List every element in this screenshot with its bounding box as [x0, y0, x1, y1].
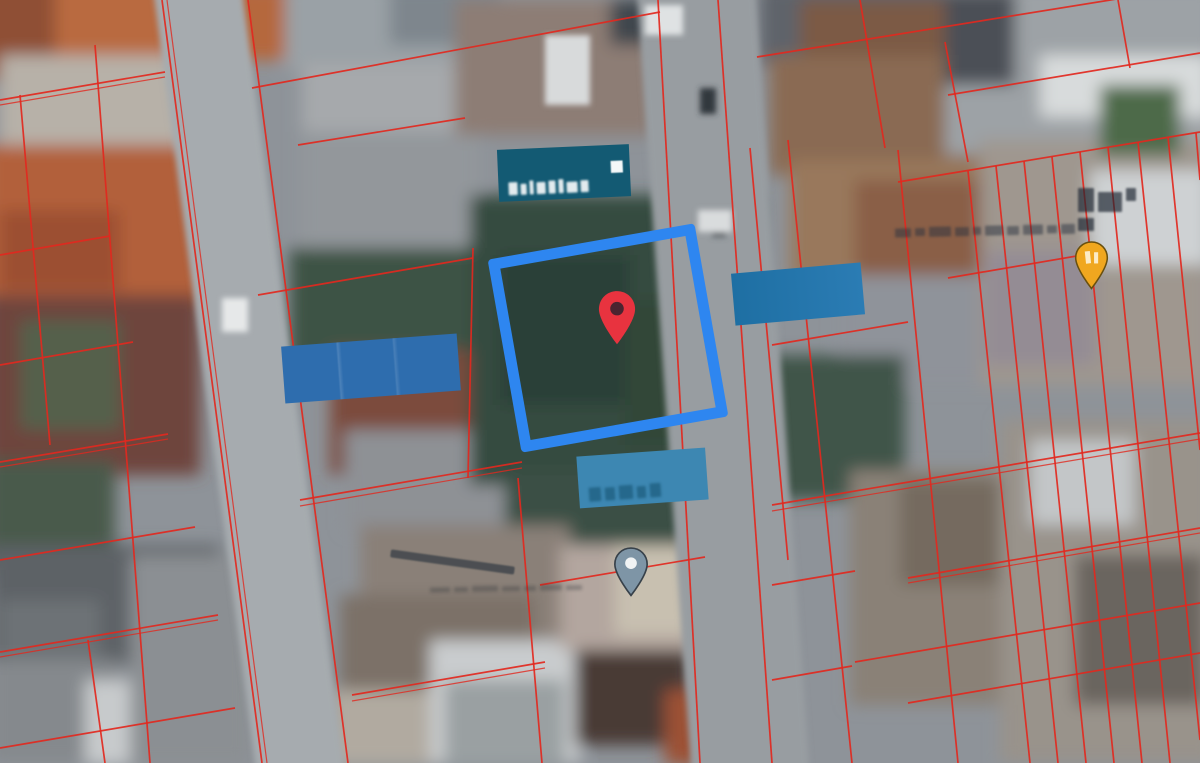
blurred-glyph: [536, 182, 546, 194]
motorbike: [700, 88, 716, 114]
blurred-bold-text: [1076, 188, 1146, 236]
blurred-glyph: [508, 182, 518, 195]
red-location-pin[interactable]: [597, 290, 637, 346]
blurred-glyph: [637, 486, 647, 499]
gray-location-pin[interactable]: [613, 547, 649, 597]
blurred-glyph: [558, 179, 564, 193]
white-car: [222, 298, 248, 332]
pin-icon: [613, 547, 649, 597]
redacted-label-top: [497, 144, 631, 202]
redacted-label-bottom: [576, 448, 708, 509]
blurred-glyph: [580, 180, 589, 192]
pin-icon: [1074, 241, 1109, 290]
blurred-glyph: [566, 181, 577, 192]
blurred-glyph: [548, 180, 556, 193]
orange-location-pin[interactable]: [1074, 241, 1109, 290]
blurred-glyph: [605, 487, 616, 501]
map-canvas: [0, 0, 1200, 763]
blurred-glyph: [529, 180, 534, 194]
white-van: [545, 35, 590, 105]
blurred-glyph: [611, 160, 624, 173]
blurred-glyph: [589, 487, 602, 502]
blurred-glyph: [618, 485, 633, 500]
white-car: [645, 5, 683, 35]
blurred-glyph: [520, 184, 526, 195]
blurred-glyph: [649, 483, 661, 498]
pin-icon: [597, 290, 637, 346]
white-car: [698, 210, 732, 232]
